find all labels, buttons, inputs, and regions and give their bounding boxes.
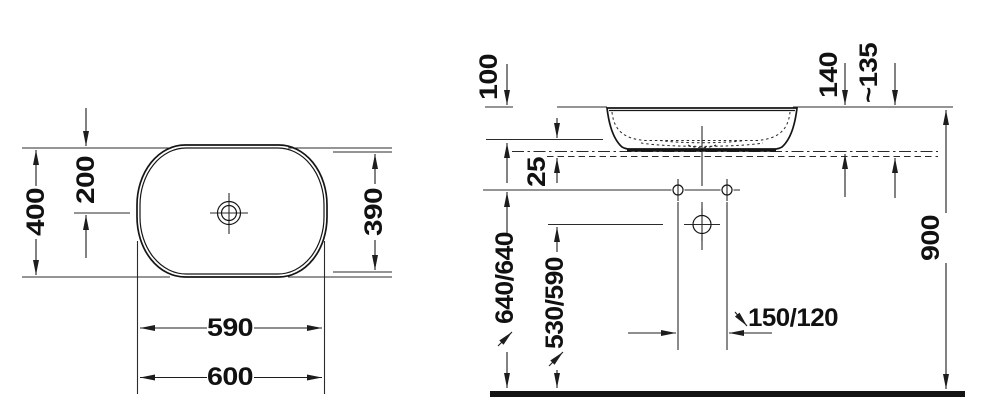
- dim-rim-height-label: 900: [917, 215, 945, 261]
- dim-total-height-label: 140: [815, 52, 843, 98]
- dim-total-height: 140: [815, 52, 845, 197]
- dim-center-depth-label: 200: [72, 156, 100, 204]
- dim-bowl-depth: 100: [475, 54, 507, 183]
- dim-drain-height-label: 530/590: [541, 257, 569, 349]
- dim-overall-width: 600: [140, 363, 322, 391]
- dimension-drawing-sheet: 400 200 390 590 600: [0, 0, 992, 405]
- drain-front-symbol: [684, 208, 720, 241]
- dim-inner-width: 590: [140, 314, 322, 342]
- dim-installed-height: ~135: [855, 42, 895, 198]
- dim-faucet-height-label: 640/640: [491, 232, 519, 324]
- basin-inner-wall-dotted: [612, 112, 790, 141]
- dim-center-depth: 200: [72, 108, 100, 258]
- dim-overall-depth: 400: [22, 150, 50, 275]
- basin-plan-outline: [137, 145, 327, 277]
- dim-inner-depth-label: 390: [360, 188, 388, 236]
- dim-faucet-height: 640/640: [491, 192, 519, 388]
- dim-inner-width-label: 590: [207, 314, 253, 342]
- dim-bowl-depth-label: 100: [475, 54, 503, 100]
- drain-plan-symbol: [210, 193, 248, 234]
- dim-base-gap: 25: [523, 118, 557, 187]
- dim-overall-depth-label: 400: [22, 188, 50, 236]
- dim-drain-height: 530/590: [541, 227, 569, 388]
- dim-base-gap-label: 25: [523, 156, 551, 187]
- top-view: 400 200 390 590 600: [22, 108, 392, 394]
- technical-drawing-canvas: 400 200 390 590 600: [0, 0, 992, 405]
- floor-line: [490, 391, 965, 397]
- front-view: 100 25 640/640 530/590 150/120: [475, 42, 965, 397]
- dim-faucet-offset: 150/120: [628, 304, 838, 333]
- dim-faucet-offset-label: 150/120: [748, 304, 838, 332]
- dim-overall-width-label: 600: [207, 363, 253, 391]
- dim-inner-depth: 390: [360, 154, 388, 270]
- dim-installed-height-label: ~135: [855, 42, 883, 103]
